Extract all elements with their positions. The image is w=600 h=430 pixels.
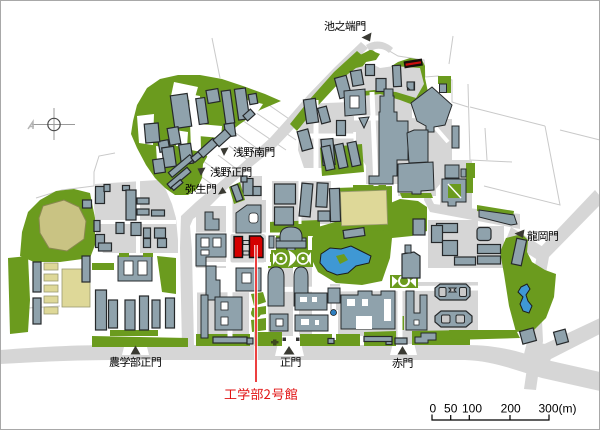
- svg-text:200: 200: [501, 402, 521, 416]
- svg-text:300(m): 300(m): [539, 402, 577, 416]
- svg-text:100: 100: [462, 402, 482, 416]
- svg-text:0: 0: [429, 402, 436, 416]
- svg-text:50: 50: [444, 402, 458, 416]
